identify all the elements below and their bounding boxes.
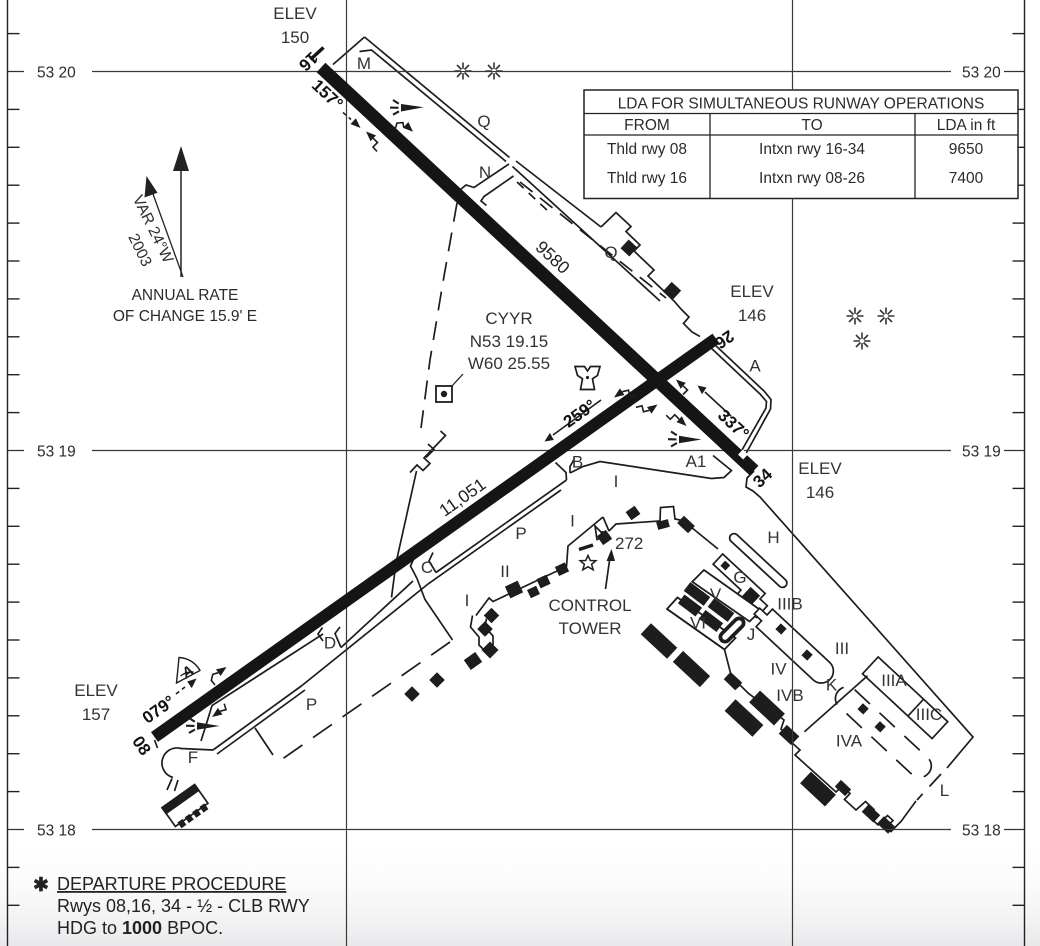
- svg-text:ELEV: ELEV: [730, 282, 774, 301]
- svg-text:II: II: [500, 562, 509, 581]
- svg-text:IVB: IVB: [776, 686, 803, 705]
- svg-text:ELEV: ELEV: [273, 4, 317, 23]
- svg-text:Q: Q: [604, 243, 617, 262]
- svg-text:TO: TO: [801, 117, 822, 134]
- svg-text:III: III: [835, 639, 849, 658]
- svg-text:146: 146: [806, 483, 834, 502]
- svg-text:I: I: [465, 591, 470, 610]
- svg-text:IIIC: IIIC: [916, 705, 942, 724]
- svg-text:B: B: [572, 453, 583, 472]
- svg-text:Thld rwy 08: Thld rwy 08: [607, 141, 687, 158]
- svg-text:A: A: [749, 357, 761, 376]
- svg-text:N: N: [479, 163, 491, 182]
- svg-text:272: 272: [615, 534, 643, 553]
- svg-text:Thld rwy 16: Thld rwy 16: [607, 170, 687, 187]
- svg-text:IIIA: IIIA: [881, 671, 907, 690]
- svg-text:53 18: 53 18: [37, 823, 76, 840]
- svg-text:IIIB: IIIB: [777, 595, 803, 614]
- svg-text:53 19: 53 19: [37, 444, 76, 461]
- svg-text:H: H: [767, 528, 779, 547]
- svg-text:157: 157: [82, 705, 110, 724]
- svg-text:Intxn rwy 08-26: Intxn rwy 08-26: [759, 170, 865, 187]
- svg-text:TOWER: TOWER: [559, 619, 622, 638]
- svg-text:P: P: [306, 695, 317, 714]
- svg-text:53 19: 53 19: [962, 444, 1001, 461]
- svg-text:CYYR: CYYR: [485, 309, 532, 328]
- svg-text:G: G: [733, 568, 746, 587]
- svg-text:OF CHANGE 15.9' E: OF CHANGE 15.9' E: [113, 308, 257, 325]
- svg-text:53 20: 53 20: [962, 65, 1001, 82]
- svg-text:FROM: FROM: [624, 117, 670, 134]
- svg-text:LDA FOR SIMULTANEOUS RUNWAY OP: LDA FOR SIMULTANEOUS RUNWAY OPERATIONS: [618, 96, 985, 113]
- svg-text:✱: ✱: [33, 875, 49, 896]
- svg-text:N53 19.15: N53 19.15: [470, 332, 548, 351]
- svg-text:D: D: [324, 634, 336, 653]
- svg-text:I: I: [570, 512, 575, 531]
- svg-text:F: F: [188, 748, 198, 767]
- svg-text:J: J: [747, 625, 756, 644]
- svg-text:K: K: [826, 676, 838, 695]
- svg-text:P: P: [515, 524, 526, 543]
- svg-text:L: L: [940, 781, 949, 800]
- svg-text:Rwys 08,16, 34 - ½ - CLB RWY: Rwys 08,16, 34 - ½ - CLB RWY: [57, 896, 310, 916]
- svg-text:53 20: 53 20: [37, 65, 76, 82]
- svg-text:IV: IV: [770, 660, 787, 679]
- svg-text:ELEV: ELEV: [74, 681, 118, 700]
- svg-text:ANNUAL RATE: ANNUAL RATE: [132, 287, 239, 304]
- svg-text:ELEV: ELEV: [798, 459, 842, 478]
- svg-text:150: 150: [281, 28, 309, 47]
- svg-text:M: M: [357, 54, 371, 73]
- svg-text:LDA in ft: LDA in ft: [937, 117, 996, 134]
- svg-text:Q: Q: [477, 112, 490, 131]
- svg-text:7400: 7400: [949, 170, 984, 187]
- svg-text:DEPARTURE PROCEDURE: DEPARTURE PROCEDURE: [57, 874, 286, 894]
- svg-text:C: C: [421, 558, 433, 577]
- svg-text:Intxn rwy 16-34: Intxn rwy 16-34: [759, 141, 865, 158]
- svg-text:VI: VI: [690, 614, 706, 633]
- svg-text:I: I: [614, 472, 619, 491]
- svg-text:53 18: 53 18: [962, 823, 1001, 840]
- svg-text:9650: 9650: [949, 141, 984, 158]
- svg-text:146: 146: [738, 306, 766, 325]
- svg-text:HDG to 1000 BPOC.: HDG to 1000 BPOC.: [57, 918, 223, 938]
- svg-text:V: V: [710, 585, 722, 604]
- svg-text:W60 25.55: W60 25.55: [468, 354, 550, 373]
- svg-text:A1: A1: [686, 452, 707, 471]
- svg-text:IVA: IVA: [836, 732, 863, 751]
- svg-text:CONTROL: CONTROL: [548, 596, 631, 615]
